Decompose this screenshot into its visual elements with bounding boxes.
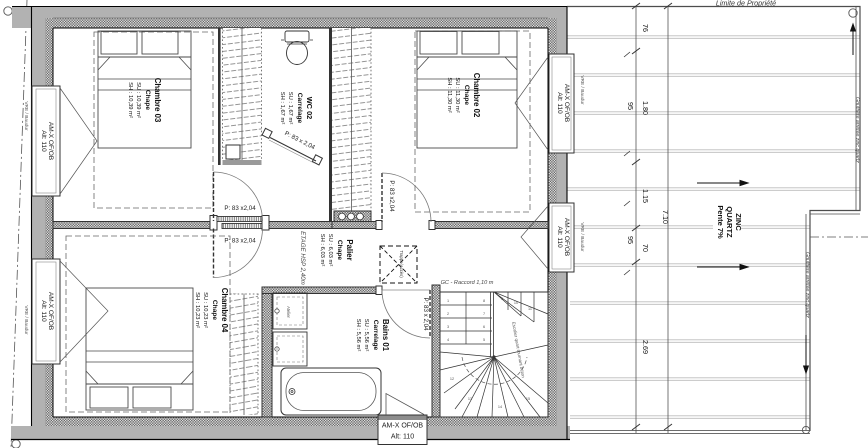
- svg-text:Trappe(Accès): Trappe(Accès): [399, 250, 404, 278]
- svg-text:Chape: Chape: [144, 90, 151, 110]
- svg-text:AM-X OF/OB: AM-X OF/OB: [563, 84, 570, 122]
- svg-text:SH : 10,39 m²: SH : 10,39 m²: [127, 82, 133, 118]
- svg-text:10: 10: [514, 301, 518, 305]
- svg-text:Alt: 110: Alt: 110: [40, 130, 47, 152]
- svg-text:Alt: 110: Alt: 110: [391, 434, 414, 441]
- svg-text:2: 2: [447, 312, 449, 316]
- svg-text:Chambre 03: Chambre 03: [153, 78, 162, 123]
- svg-text:Chambre 04: Chambre 04: [220, 288, 229, 333]
- svg-text:76: 76: [641, 24, 650, 32]
- svg-text:2.69: 2.69: [641, 340, 650, 354]
- svg-text:WC 02: WC 02: [305, 97, 314, 120]
- svg-text:7.10: 7.10: [661, 210, 670, 224]
- svg-text:SU : 6,03 m²: SU : 6,03 m²: [327, 234, 333, 267]
- svg-text:SH : 10,23 m²: SH : 10,23 m²: [194, 292, 200, 328]
- svg-text:Carrelage: Carrelage: [296, 93, 303, 124]
- svg-text:1.80: 1.80: [641, 101, 650, 115]
- svg-text:Limite de Propriété: Limite de Propriété: [716, 0, 776, 8]
- svg-text:SU : 10,23 m²: SU : 10,23 m²: [202, 292, 208, 328]
- svg-text:11: 11: [528, 307, 532, 311]
- svg-text:1: 1: [447, 299, 449, 303]
- svg-text:AM-X OF/OB: AM-X OF/OB: [382, 423, 424, 430]
- svg-text:P: 83 x2,04: P: 83 x2,04: [224, 205, 256, 212]
- svg-text:Carrelage: Carrelage: [372, 320, 379, 351]
- svg-text:AM-X OF/OB: AM-X OF/OB: [47, 122, 54, 160]
- svg-text:QUARTZ: QUARTZ: [725, 206, 734, 238]
- svg-text:SH : 6,03 m²: SH : 6,03 m²: [319, 234, 325, 267]
- svg-text:6: 6: [483, 325, 485, 329]
- svg-text:12: 12: [450, 377, 454, 381]
- svg-text:ETAGE HSP 2,40m: ETAGE HSP 2,40m: [299, 231, 306, 285]
- svg-text:7: 7: [483, 312, 485, 316]
- svg-text:13: 13: [468, 397, 472, 401]
- svg-text:1.15: 1.15: [641, 189, 650, 203]
- svg-text:SH : 11,30 m²: SH : 11,30 m²: [446, 77, 452, 112]
- svg-text:14: 14: [498, 405, 502, 409]
- svg-text:8: 8: [483, 299, 485, 303]
- svg-text:70: 70: [641, 244, 650, 252]
- svg-text:4: 4: [447, 338, 449, 342]
- svg-text:SU : 10,39 m²: SU : 10,39 m²: [135, 82, 141, 118]
- svg-text:Alt: 110: Alt: 110: [40, 300, 47, 322]
- svg-text:SU : 1,67 m²: SU : 1,67 m²: [287, 92, 293, 125]
- svg-text:SH : 5,56 m²: SH : 5,56 m²: [355, 319, 361, 352]
- svg-text:Alt: 110: Alt: 110: [556, 92, 563, 114]
- svg-text:Chape: Chape: [463, 85, 470, 105]
- svg-text:Gouttière arrêtée zinc quartz: Gouttière arrêtée zinc quartz: [854, 97, 860, 163]
- svg-text:VRE / Baudur: VRE / Baudur: [23, 101, 29, 131]
- svg-text:VRE / Baudur: VRE / Baudur: [23, 305, 29, 335]
- svg-text:SH : 1,67 m²: SH : 1,67 m²: [279, 92, 285, 125]
- svg-text:95: 95: [626, 236, 635, 244]
- svg-text:Pente 7%: Pente 7%: [716, 205, 725, 239]
- svg-text:Chambre 02: Chambre 02: [472, 73, 481, 118]
- svg-text:SU : 5,56 m²: SU : 5,56 m²: [363, 319, 369, 352]
- svg-text:95: 95: [626, 102, 635, 110]
- svg-text:SU : 11,30 m²: SU : 11,30 m²: [454, 77, 460, 112]
- svg-text:VRE / Baudur: VRE / Baudur: [579, 222, 585, 252]
- svg-text:P: 83 x 2,04: P: 83 x 2,04: [422, 297, 429, 331]
- svg-text:5: 5: [483, 338, 485, 342]
- svg-text:9: 9: [501, 297, 503, 301]
- svg-text:15: 15: [526, 397, 530, 401]
- svg-text:AM-X OF/OB: AM-X OF/OB: [563, 218, 570, 256]
- svg-text:Bains 01: Bains 01: [381, 319, 390, 352]
- svg-text:P: 83 x2,04: P: 83 x2,04: [224, 238, 256, 245]
- svg-text:Atelier: Atelier: [286, 306, 291, 318]
- svg-text:VRE / Baudur: VRE / Baudur: [579, 75, 585, 105]
- svg-text:AM-X OF/OB: AM-X OF/OB: [47, 292, 54, 330]
- svg-text:ZINC: ZINC: [734, 213, 743, 231]
- svg-text:Gouttière arrêtée zinc quartz: Gouttière arrêtée zinc quartz: [804, 252, 810, 318]
- svg-text:Chape: Chape: [336, 240, 343, 260]
- svg-text:Alt: 110: Alt: 110: [556, 226, 563, 248]
- svg-text:3: 3: [447, 325, 449, 329]
- svg-text:GC - Raccord 1,10 m: GC - Raccord 1,10 m: [441, 280, 494, 286]
- svg-text:Palier: Palier: [345, 239, 354, 260]
- svg-text:P: 83 x2,04: P: 83 x2,04: [388, 180, 395, 212]
- svg-text:Chape: Chape: [211, 300, 218, 320]
